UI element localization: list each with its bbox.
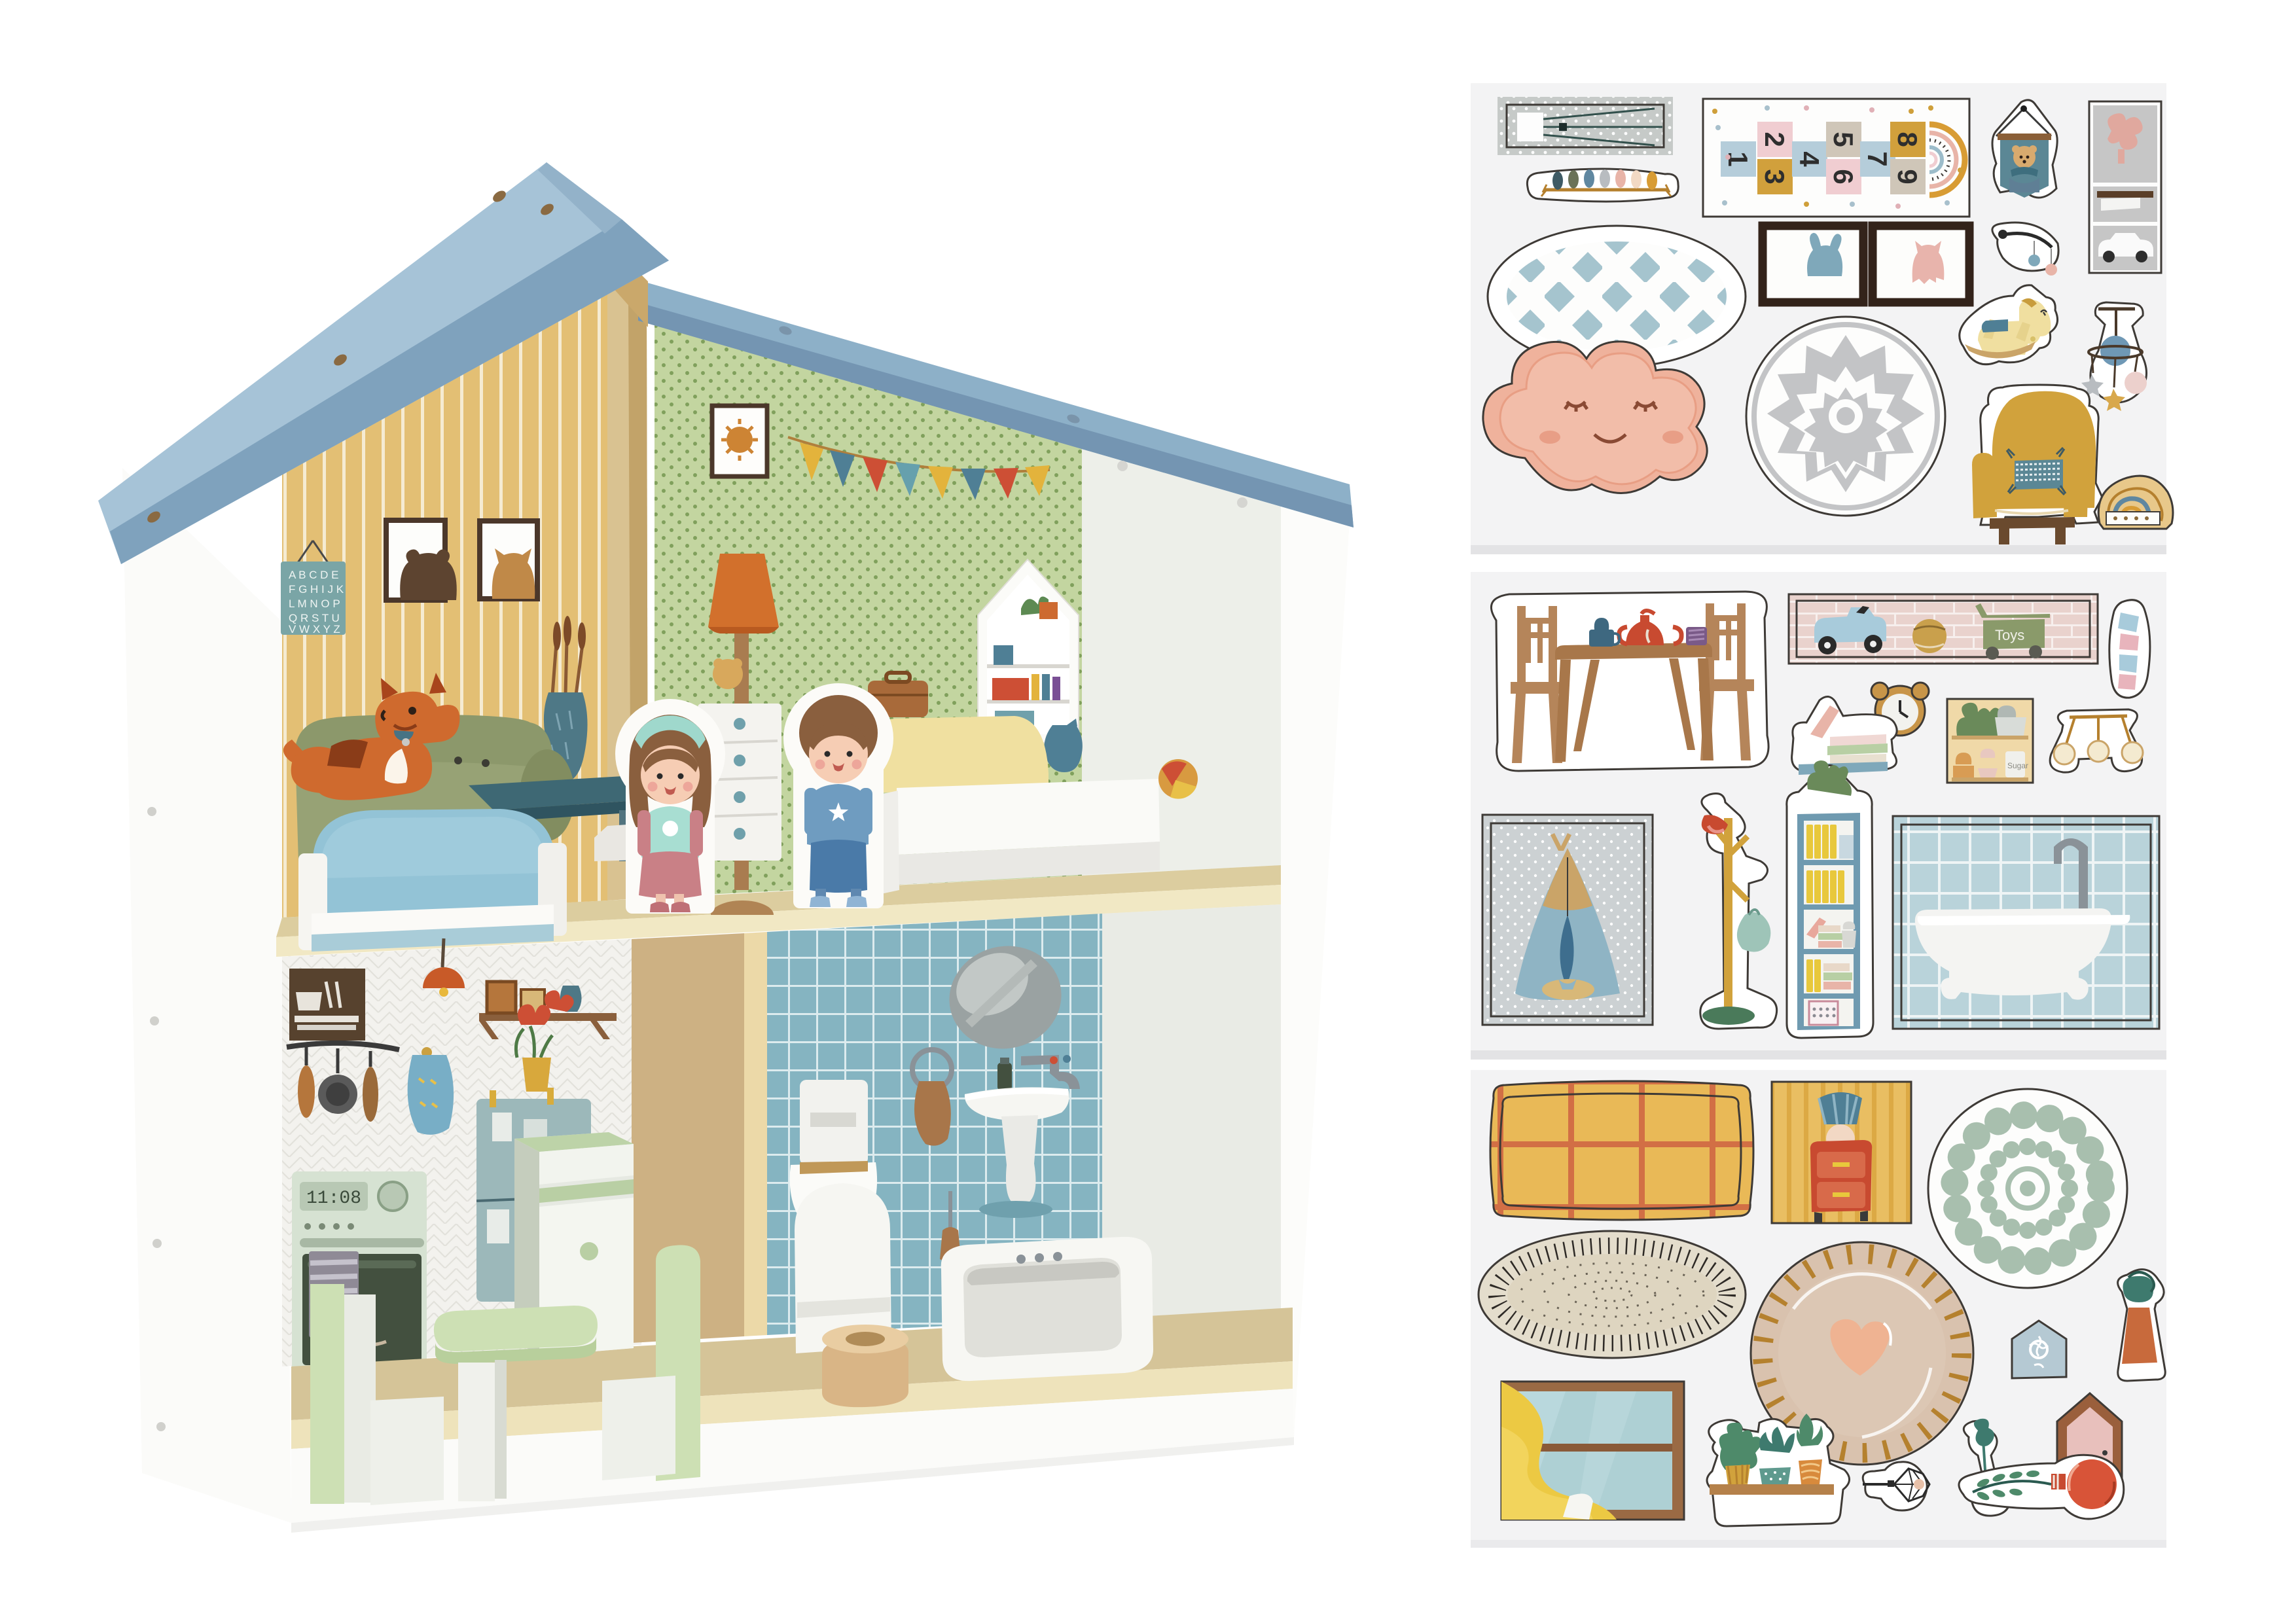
svg-text:F G H I J K: F G H I J K — [289, 583, 344, 596]
svg-text:3: 3 — [1759, 169, 1790, 184]
svg-text:Sugar: Sugar — [2007, 761, 2028, 770]
svg-text:Toys: Toys — [1995, 627, 2024, 643]
svg-text:7: 7 — [1862, 151, 1893, 166]
svg-text:L M N O P: L M N O P — [289, 597, 340, 610]
svg-text:8: 8 — [1892, 132, 1923, 147]
svg-text:V W X Y Z: V W X Y Z — [289, 623, 340, 635]
svg-text:5: 5 — [1828, 132, 1859, 147]
svg-text:9: 9 — [1892, 169, 1923, 184]
svg-text:A B C D E: A B C D E — [289, 569, 339, 581]
svg-text:2: 2 — [1759, 132, 1790, 147]
svg-text:11:08: 11:08 — [306, 1188, 361, 1209]
svg-text:6: 6 — [1828, 169, 1859, 184]
svg-text:4: 4 — [1794, 151, 1825, 167]
